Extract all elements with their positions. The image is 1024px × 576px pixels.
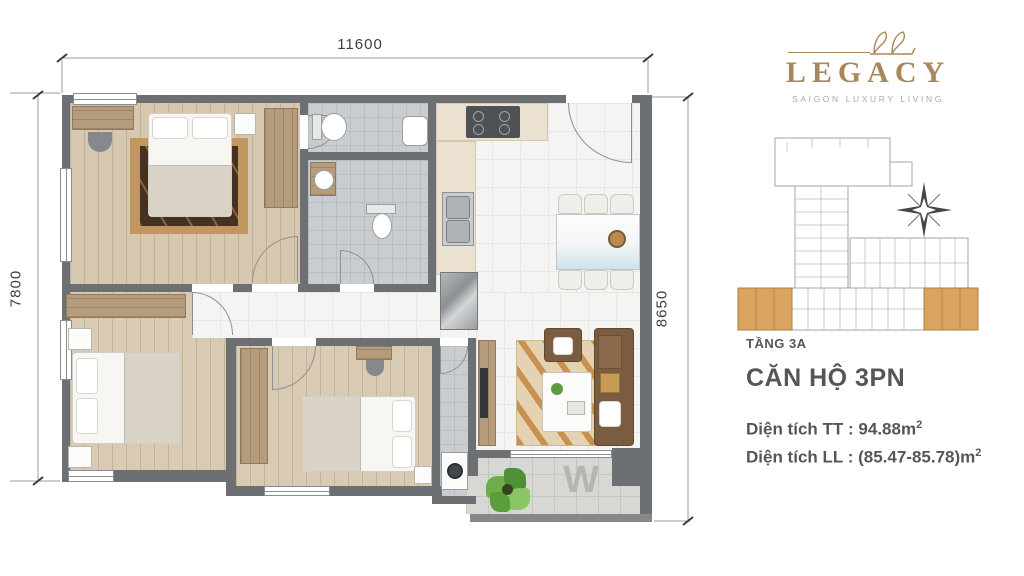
master-nightstand	[234, 113, 256, 135]
wall-top	[62, 95, 652, 103]
table-decor-plant	[551, 383, 563, 395]
compass-icon	[896, 182, 952, 238]
wall-balcony-right	[640, 486, 652, 516]
bath1-sink	[402, 116, 428, 146]
washer	[441, 452, 468, 490]
washer-drum-icon	[447, 463, 463, 479]
wall-bath-kitchen	[428, 95, 436, 284]
area-tt-value: 94.88m	[858, 420, 916, 439]
tv	[480, 368, 488, 418]
entrance-opening	[566, 95, 632, 103]
logo-rule	[788, 52, 870, 53]
sofa	[594, 328, 634, 446]
bedroom3-pillow	[392, 436, 412, 468]
fridge	[440, 272, 478, 330]
bedroom3-wardrobe	[240, 348, 268, 464]
keyplan-floor-label: TẦNG 3A	[746, 336, 807, 351]
bath1-door-opening	[300, 115, 308, 149]
bedroom3-desk	[356, 346, 392, 360]
wall-bed3-north-1	[228, 338, 272, 346]
unit-area-tt: Diện tích TT : 94.88m2	[746, 419, 922, 440]
laundry-door-opening	[440, 338, 468, 346]
wall-living-west	[468, 338, 476, 454]
wall-mid-2	[233, 284, 252, 292]
window-master-top	[73, 93, 137, 105]
brand-name: LEGACY	[770, 56, 966, 90]
bedroom3-pillow	[392, 400, 412, 432]
unit-area-ll: Diện tích LL : (85.47-85.78)m2	[746, 447, 981, 468]
wall-mid-1	[62, 284, 192, 292]
dimension-top: 11600	[325, 36, 395, 53]
wall-mid-4	[374, 284, 436, 292]
balcony-rail	[470, 514, 652, 522]
window-bedroom2-bottom	[68, 470, 114, 482]
area-ll-value: (85.47-85.78)m	[858, 448, 975, 467]
bath2-door-opening	[340, 284, 374, 292]
stove	[466, 106, 520, 138]
bedroom2-nightstand-top	[68, 328, 92, 350]
dining-chair	[584, 270, 608, 290]
dining-table	[556, 214, 640, 270]
burner-icon	[499, 124, 510, 135]
dimension-right: 8650	[654, 279, 671, 339]
armchair-cushion	[553, 337, 573, 355]
dining-chair	[558, 194, 582, 214]
area-tt-sup: 2	[916, 419, 922, 431]
sink-basin-icon	[446, 196, 470, 219]
master-pillow-left	[152, 117, 188, 139]
toilet1-bowl	[321, 113, 347, 141]
burner-icon	[499, 111, 510, 122]
brand-logo: LEGACY SAIGON LUXURY LIVING	[770, 26, 966, 110]
wall-bed3-east	[432, 338, 440, 504]
wall-bath-divider	[300, 152, 436, 160]
area-ll-label: Diện tích LL :	[746, 448, 853, 467]
bedroom2-pillow	[76, 358, 98, 394]
wall-right	[640, 95, 652, 452]
sofa-cushion	[598, 335, 622, 369]
wall-bedroom3-bottom	[228, 486, 442, 496]
balcony-window-mark: W	[556, 458, 606, 502]
dining-plate	[608, 230, 626, 248]
unit-title: CĂN HỘ 3PN	[746, 364, 905, 393]
dining-chair	[610, 270, 634, 290]
master-desk	[72, 106, 134, 130]
wall-mid-3	[298, 284, 340, 292]
master-door-opening	[252, 284, 298, 292]
bedroom3-nightstand	[414, 466, 432, 484]
bed3-door-opening	[272, 338, 316, 346]
wall-corner-column	[612, 448, 652, 486]
key-plan	[722, 128, 1022, 333]
dining-chair	[558, 270, 582, 290]
master-wardrobe	[264, 108, 298, 208]
burner-icon	[473, 111, 484, 122]
window-master-left	[60, 168, 72, 262]
wall-bed2-east	[226, 338, 236, 472]
sofa-pillow-white	[599, 401, 621, 427]
dining-chair	[610, 194, 634, 214]
armchair	[544, 328, 582, 362]
floorplan-page: W 11600 7800 8650	[0, 0, 1024, 576]
bedroom2-nightstand-bottom	[68, 446, 92, 468]
bedroom2-blanket	[124, 353, 179, 443]
kitchen-sink	[442, 192, 474, 246]
dimension-left: 7800	[8, 259, 25, 319]
bedroom2-pillow	[76, 398, 98, 434]
logo-mark-icon	[870, 28, 916, 58]
wall-laundry-bottom	[432, 496, 476, 504]
balcony-plant	[484, 466, 532, 514]
area-ll-sup: 2	[975, 447, 981, 459]
bath2-basin	[314, 170, 334, 190]
window-bedroom3-bottom	[264, 486, 330, 496]
dining-chair	[584, 194, 608, 214]
burner-icon	[473, 124, 484, 135]
table-decor-book	[567, 401, 585, 415]
area-tt-label: Diện tích TT :	[746, 420, 854, 439]
sofa-pillow-tan	[600, 373, 620, 393]
sink-basin-icon	[446, 220, 470, 243]
bedroom3-blanket	[303, 397, 361, 471]
wall-step	[226, 470, 236, 496]
plant-leaf	[490, 492, 510, 512]
plant-center	[502, 484, 513, 495]
master-pillow-right	[192, 117, 228, 139]
toilet2-bowl	[372, 213, 392, 239]
master-blanket	[149, 165, 231, 216]
bedroom2-wardrobe	[66, 294, 186, 318]
balcony-sliding-window	[510, 450, 612, 458]
wall-living-south	[476, 450, 512, 458]
brand-tagline: SAIGON LUXURY LIVING	[770, 94, 966, 104]
coffee-table	[542, 372, 592, 432]
wall-bed3-north-2	[316, 338, 440, 346]
